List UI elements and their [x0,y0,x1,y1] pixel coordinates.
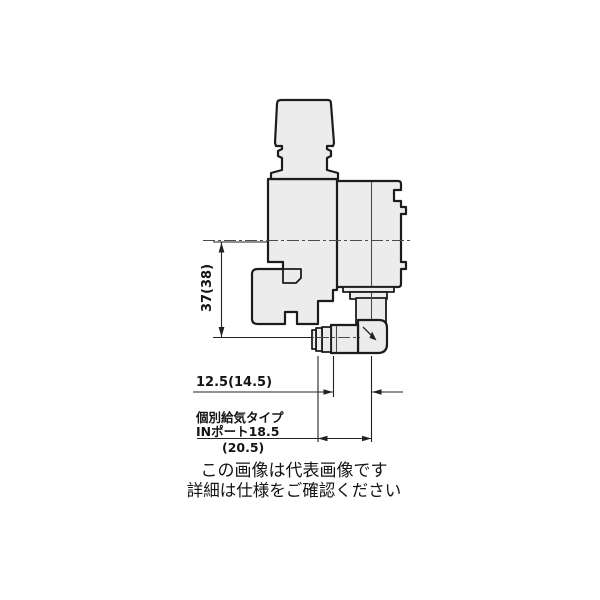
caption-check-specs: 詳細は仕様をご確認ください [94,477,494,501]
port-note-type: 個別給気タイプ [196,411,284,425]
bracket-hook-detail [283,269,301,283]
dim-horizontal-label: 12.5(14.5) [196,376,272,390]
product-technical-drawing: 37(38) 12.5(14.5) 個別給気タイプ INポート18.5 (20.… [0,0,600,600]
fitting-collar [322,327,331,352]
fitting-cylinder [331,325,358,353]
dim-v-arrow-down [219,327,225,337]
valve-drawing-svg [0,0,600,600]
regulator-body [252,179,337,324]
dim-v-arrow-up [219,243,225,253]
dim-h2-arrow-left [318,436,328,442]
dim-h1-arrow-left [324,389,334,395]
dim-h1-arrow-right [372,389,382,395]
adjustment-knob [271,100,338,179]
dim-vertical-label: 37(38) [200,258,216,318]
port-note-paren: (20.5) [222,441,264,455]
dim-h2-arrow-right [362,436,372,442]
fitting-lip [312,330,316,349]
port-note-inport: INポート18.5 [196,425,279,439]
